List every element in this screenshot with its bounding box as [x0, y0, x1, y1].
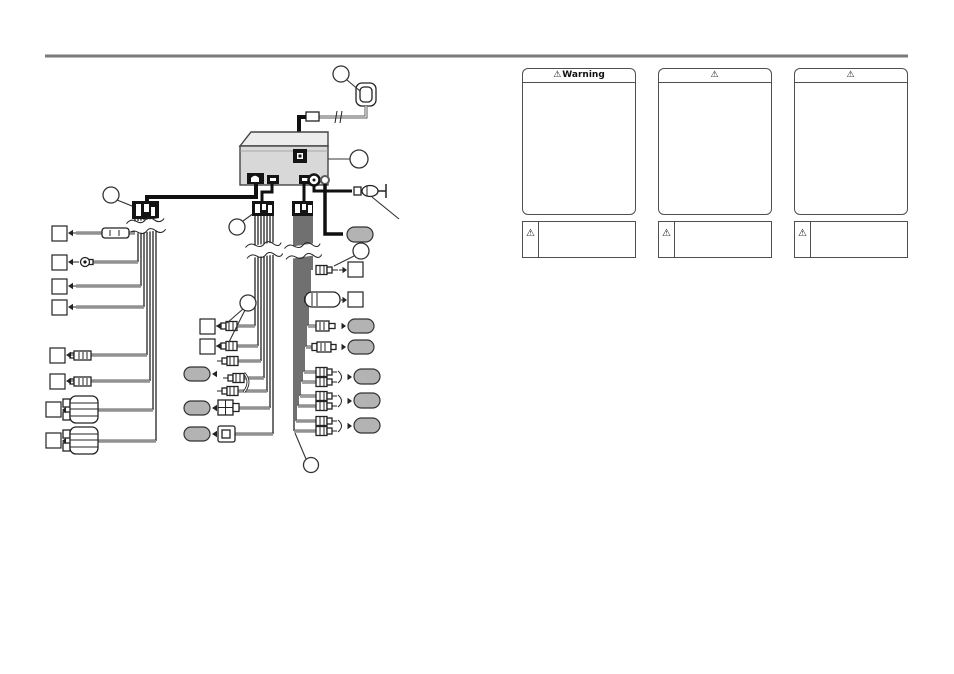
caution-symbol-cell: ⚠ [523, 222, 539, 257]
wire-label-box [200, 339, 215, 354]
wire-label-box [348, 292, 363, 307]
ring-terminal [81, 258, 94, 267]
arrow-icon [216, 323, 221, 329]
caution-note-2: ⚠ [658, 221, 772, 258]
right-harness-connector [292, 201, 313, 216]
rear-connector-a [247, 173, 264, 184]
wire-label-box [348, 262, 363, 277]
caution-symbol-cell: ⚠ [795, 222, 811, 257]
connector-label-oval [184, 401, 210, 415]
fuse-holder [102, 228, 129, 238]
warning-triangle-icon: ⚠ [798, 228, 807, 257]
caution-symbol-cell: ⚠ [659, 222, 675, 257]
warning-panel-header: ⚠ [659, 69, 771, 83]
warning-triangle-icon: ⚠ [846, 69, 854, 82]
warning-panel-title: Warning [562, 69, 604, 82]
rca-plug-right-top [316, 266, 338, 275]
arrow-icon [343, 267, 348, 273]
warning-triangle-icon: ⚠ [526, 228, 535, 257]
callout-circle-middle-rca [227, 295, 256, 342]
callout-circle-right-bundle [295, 433, 319, 473]
arrow-icon [216, 343, 221, 349]
din-plug-connector [218, 400, 239, 415]
callout-circle-head-unit [328, 150, 368, 168]
speaker-connector-1 [63, 396, 98, 423]
connector-label-oval [354, 393, 380, 408]
speaker-connector-2 [63, 427, 98, 454]
callout-circle-left-harness [103, 187, 132, 206]
left-harness-connector [132, 201, 159, 219]
warning-triangle-icon: ⚠ [662, 228, 671, 257]
caution-note-body [539, 222, 635, 257]
lead-to-plug [314, 186, 352, 191]
rca-pair-3 [316, 417, 342, 436]
arrow-icon [342, 344, 347, 350]
pigtail-connector-1 [316, 321, 335, 331]
arrow-icon [348, 374, 353, 380]
rear-connector-b [267, 175, 279, 184]
arrow-icon [212, 405, 217, 411]
warning-panel-header: ⚠Warning [523, 69, 635, 83]
arrow-icon [343, 297, 348, 303]
callout-circle-antenna [333, 66, 360, 91]
warning-triangle-icon: ⚠ [553, 69, 561, 82]
connector-label-oval [348, 340, 374, 354]
plug-connector [354, 184, 399, 219]
rca-pair-2 [316, 392, 342, 411]
connector-label-oval [184, 427, 210, 441]
warning-panel-2: ⚠ [658, 68, 772, 215]
bundle-break-right [284, 241, 322, 262]
left-wire-bundle [135, 219, 156, 441]
warning-panel-3: ⚠ [794, 68, 908, 215]
manual-page: ⚠Warning ⚠ ⚠ ⚠ ⚠ ⚠ [0, 0, 954, 674]
arrow-icon [212, 371, 217, 377]
arrow-icon [348, 398, 353, 404]
inline-module [305, 292, 340, 307]
arrow-icon [212, 431, 217, 437]
antenna-jack [293, 149, 307, 163]
warning-triangle-icon: ⚠ [710, 69, 718, 82]
connector-label-oval [347, 227, 373, 242]
lead-middle-harness [262, 184, 272, 201]
rear-round-jack-1 [309, 175, 320, 186]
connector-label-oval [348, 319, 374, 333]
connector-label-oval [354, 418, 380, 433]
caution-note-3: ⚠ [794, 221, 908, 258]
power-lead-left [147, 184, 256, 202]
connector-label-oval [184, 367, 210, 381]
rca-pair-1 [316, 368, 342, 387]
square-plug-connector [218, 426, 235, 442]
rear-round-jack-2 [321, 176, 329, 184]
wire-label-box [200, 319, 215, 334]
caution-note-body [675, 222, 771, 257]
connector-label-oval [354, 369, 380, 384]
pigtail-connector-2 [312, 342, 336, 352]
arrow-icon [348, 423, 353, 429]
warning-panel-header: ⚠ [795, 69, 907, 83]
caution-note-body [811, 222, 907, 257]
warning-panel-1: ⚠Warning [522, 68, 636, 215]
antenna-icon [356, 83, 376, 106]
arrow-icon [342, 323, 347, 329]
callout-circle-middle-harness [229, 213, 254, 235]
caution-note-1: ⚠ [522, 221, 636, 258]
middle-harness-connector [252, 201, 274, 216]
